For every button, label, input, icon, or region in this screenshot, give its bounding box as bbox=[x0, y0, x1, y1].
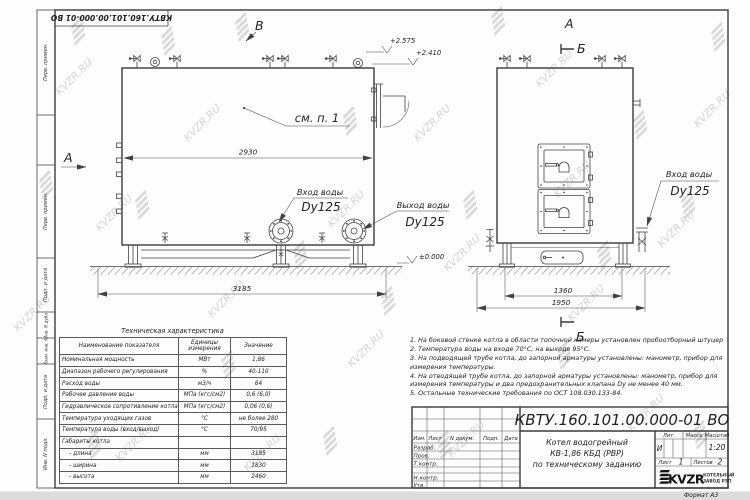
spec-table-block: Техническая характеристика Наименование … bbox=[59, 327, 286, 484]
kvzr-logo: KVZR КОТЕЛЬНЫЙ ЗАВОД РЭП bbox=[651, 470, 735, 487]
role-prov: Пров. bbox=[414, 454, 430, 460]
sheet-value: 1 bbox=[679, 458, 684, 467]
note-1: 1. На боковой стенке котла в области топ… bbox=[410, 336, 744, 344]
rev-col-list: Лист bbox=[427, 436, 442, 442]
spec-row: Номинальная мощностьМВт1,86 bbox=[60, 355, 287, 367]
doc-number-stamp: КВТУ.160.101.00.000-01 ВО bbox=[56, 10, 167, 26]
technical-notes: 1. На боковой стенке котла в области топ… bbox=[410, 336, 744, 398]
margin-cell-podp-data-2: Подп. и дата bbox=[37, 364, 55, 419]
format-label: Формат А3 bbox=[684, 492, 718, 499]
furnace-door-lower bbox=[538, 190, 593, 234]
spec-col-name: Наименование показателя bbox=[60, 338, 179, 355]
spec-row: - длинамм3185 bbox=[60, 448, 287, 460]
svg-text:KVZR.RU: KVZR.RU bbox=[54, 56, 96, 98]
spec-col-units: Единицы измерения bbox=[179, 338, 231, 355]
spec-row: Температура уходящих газов°Сне более 280 bbox=[60, 413, 287, 425]
dim-1360: 1360 bbox=[554, 286, 573, 295]
boiler-side-view: В А +2.575 +2.410 ±0.000 см. п. 1 2930 3… bbox=[61, 18, 450, 298]
spec-col-value: Значение bbox=[231, 338, 287, 355]
elevation-2575: +2.575 bbox=[390, 37, 415, 45]
lit-value: И bbox=[657, 444, 663, 453]
role-utv: Утв. bbox=[414, 483, 426, 489]
svg-text:KVZR.RU: KVZR.RU bbox=[94, 192, 136, 234]
rev-col-ndoc: N докум. bbox=[450, 436, 474, 442]
margin-cell-perv-primen-2: Перв. примен. bbox=[37, 165, 55, 258]
doc-number: КВТУ.160.101.00.000-01 ВО bbox=[515, 411, 730, 429]
lit-label: Лит. bbox=[662, 433, 675, 439]
margin-cell-inv-dubl: Инв. N дубл. bbox=[37, 312, 55, 338]
margin-cell-vzam-inv: Взам. инв. N bbox=[37, 338, 55, 364]
rev-col-podp: Подп. bbox=[483, 436, 499, 442]
spec-row: Габариты котла bbox=[60, 436, 287, 448]
rev-col-data: Дата bbox=[503, 436, 517, 442]
note-4: 4. На отводящей трубе котла, до запорной… bbox=[410, 372, 744, 388]
product-name-line1: Котел водогрейный bbox=[546, 438, 628, 447]
rev-col-izm: Изм. bbox=[413, 436, 425, 442]
water-inlet-nozzle bbox=[269, 219, 293, 243]
spec-row: Температура воды (вход/выход)°С70/95 bbox=[60, 425, 287, 437]
elevation-2410: +2.410 bbox=[416, 49, 441, 57]
svg-text:KVZR.RU: KVZR.RU bbox=[692, 88, 734, 130]
spec-table-title: Техническая характеристика bbox=[59, 327, 286, 335]
spec-row: Рабочее давление водыМПа (кгс/см2)0,6 (6… bbox=[60, 390, 287, 402]
product-name-line3: по техническому заданию bbox=[533, 460, 642, 469]
company-name-line1: КОТЕЛЬНЫЙ bbox=[703, 471, 735, 479]
elevation-zero: ±0.000 bbox=[419, 253, 444, 261]
dim-2930: 2930 bbox=[239, 148, 258, 157]
note-5: 5. Остальные технические требования по О… bbox=[410, 389, 744, 397]
svg-text:KVZR.RU: KVZR.RU bbox=[534, 48, 576, 90]
spec-row: Гидравлическое сопротивление котлаМПа (к… bbox=[60, 401, 287, 413]
dim-1950: 1950 bbox=[552, 298, 571, 307]
inlet-dn-front: Dy125 bbox=[670, 184, 709, 198]
note-3: 3. На подводящей трубе котла, до запорно… bbox=[410, 354, 744, 370]
sheets-label: Листов bbox=[692, 460, 712, 466]
role-razrab: Разраб. bbox=[414, 446, 436, 452]
logo-text: KVZR bbox=[668, 472, 705, 487]
inlet-dn: Dy125 bbox=[301, 200, 340, 214]
spec-header-row: Наименование показателя Единицы измерени… bbox=[60, 338, 287, 355]
margin-cell-empty bbox=[37, 115, 55, 165]
svg-text:KVZR.RU: KVZR.RU bbox=[552, 158, 594, 200]
outlet-dn: Dy125 bbox=[405, 215, 444, 229]
role-nkontr: Н.контр. bbox=[414, 476, 439, 482]
outlet-label: Выход воды bbox=[397, 200, 450, 210]
water-outlet-nozzle bbox=[342, 219, 366, 243]
view-label-v: В bbox=[255, 18, 264, 33]
sheet-label: Лист bbox=[657, 460, 672, 466]
note-2: 2. Температура воды на входе 70°С, на вы… bbox=[410, 345, 744, 353]
sheets-value: 2 bbox=[718, 458, 723, 467]
section-label-b-top: Б bbox=[577, 41, 586, 56]
scale-value: 1:20 bbox=[709, 443, 726, 452]
dim-3185: 3185 bbox=[233, 284, 252, 293]
role-tkontr: Т.контр. bbox=[414, 462, 438, 468]
drawing-sheet: KVZR.RU KVZR.RU KVZR.RU KVZR.RU KVZR.RU … bbox=[0, 0, 750, 500]
spec-row: - высотамм2460 bbox=[60, 471, 287, 483]
callout-see-note-1: см. п. 1 bbox=[295, 111, 339, 125]
svg-text:KVZR.RU: KVZR.RU bbox=[346, 328, 388, 370]
svg-text:KVZR.RU: KVZR.RU bbox=[182, 102, 224, 144]
scale-label: Масштаб bbox=[705, 433, 730, 439]
view-label-a-right: А bbox=[564, 16, 574, 31]
svg-text:KVZR.RU: KVZR.RU bbox=[412, 102, 454, 144]
spec-row: Расход водым3/ч64 bbox=[60, 378, 287, 390]
margin-cell-perv-primen-1: Перв. примен. bbox=[37, 10, 55, 115]
margin-cell-inv-podl: Инв. N подл. bbox=[37, 419, 55, 488]
spec-table: Наименование показателя Единицы измерени… bbox=[59, 337, 287, 484]
inlet-label: Вход воды bbox=[297, 187, 344, 197]
mass-label: Масса bbox=[686, 433, 703, 439]
margin-cell-podp-data-1: Подп. и дата bbox=[37, 258, 55, 312]
spec-row: Диапазон рабочего регулирования%40-110 bbox=[60, 366, 287, 378]
company-name-line2: ЗАВОД РЭП bbox=[703, 479, 732, 485]
spec-row: - ширинамм1830 bbox=[60, 460, 287, 472]
svg-text:KVZR.RU: KVZR.RU bbox=[656, 208, 698, 250]
view-label-a-left: А bbox=[63, 150, 73, 165]
product-name-line2: КВ-1,86 КБД (РВР) bbox=[550, 449, 624, 458]
inlet-label-front: Вход воды bbox=[666, 169, 713, 179]
